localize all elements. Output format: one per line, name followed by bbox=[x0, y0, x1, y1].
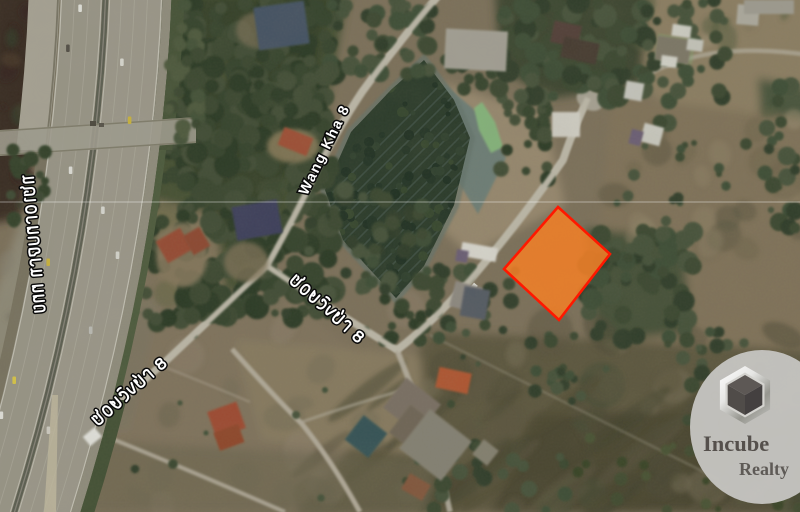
svg-text:Realty: Realty bbox=[739, 459, 789, 479]
svg-text:Incube: Incube bbox=[703, 431, 769, 456]
